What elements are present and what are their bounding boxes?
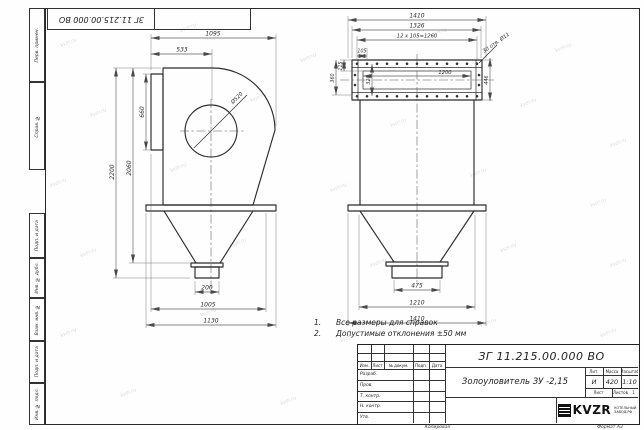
bolt-hole-dot [476,62,479,65]
bolt-hole-dot [426,62,429,65]
tb-lit-value: И [585,375,603,388]
bolt-hole-dot [356,95,359,98]
kvzr-logo-text: KVZR [573,403,612,417]
dim-320: 320 [366,75,372,84]
bolt-hole-dot [456,95,459,98]
bolt-hole-dot [456,62,459,65]
tb-col-data: Дата [429,361,445,369]
bolt-hole-dot [436,95,439,98]
tb-mass-value: 420 [603,375,621,388]
dim-475: 475 [411,283,423,290]
bolt-hole-dot [478,84,481,87]
front-outlet-box [195,267,219,278]
front-view: 1095 533 660 2200 2060 Ø520 200 [109,31,276,329]
dim-360: 360 [330,73,336,82]
tb-col-podp: Подп. [413,361,429,369]
bolt-hole-dot [466,62,469,65]
dim-105: 105 [357,49,366,55]
dia-leader-line [194,95,247,148]
dim-pitch: 12 х 105=1260 [397,34,438,40]
front-outlet-plate [191,263,223,267]
tb-col-list: Лист [371,361,384,369]
tb-role-utv: Утв. [358,412,413,423]
bolt-hole-dot [436,62,439,65]
bolt-hole-dot [376,95,379,98]
bolt-hole-dot [446,62,449,65]
tb-sheet-label: Лист [585,388,612,397]
bolt-hole-dot [354,74,357,77]
tb-lit-header: Лит. [585,367,603,375]
tb-role-prov: Пров. [358,380,413,391]
front-body-outline [163,68,275,205]
tb-col-dokum: № докум. [384,361,413,369]
drawing-sheet: kvzr.rukvzr.rukvzr.rukvzr.rukvzr.rukvzr.… [0,0,644,430]
tb-scale-value: 1:10 [621,375,638,388]
side-view: 1410 1326 12 х 105=1260 105 30 отв. Ø11 … [330,13,511,327]
dim-660: 660 [139,106,146,118]
bolt-hole-dot [466,95,469,98]
dim-115: 115 [338,61,344,70]
note-text: Все размеры для справок [336,318,438,327]
company-name: КОТЕЛЬНЫЙ ЗАВОД.РФ [614,406,636,414]
dim-446: 446 [484,75,490,84]
bolt-hole-dot [354,84,357,87]
dim-2060: 2060 [126,160,133,175]
note-number: 1. [314,318,336,327]
front-hopper-cone [164,211,253,263]
bolt-hole-dot [396,95,399,98]
dim-200: 200 [201,285,213,292]
bolt-hole-dot [406,95,409,98]
note-text: Допустимые отклонения ±50 мм [336,329,466,338]
tb-company-cell: KVZR КОТЕЛЬНЫЙ ЗАВОД.РФ [556,397,638,423]
bolt-hole-dot [366,95,369,98]
dim-1130: 1130 [203,318,218,325]
tb-doc-number: ЗГ 11.215.00.000 ВО [445,345,638,367]
dim-1005: 1005 [200,302,215,309]
dim-1095: 1095 [205,31,220,38]
bolt-hole-dot [366,62,369,65]
dim-1326: 1326 [409,23,424,30]
tb-sheets-value: 1 [629,388,638,397]
bolt-hole-dot [376,62,379,65]
tb-sheets-label: Листов [612,388,629,397]
dim-1210: 1210 [409,300,424,307]
front-inlet-side-flange [151,74,163,150]
bolt-hole-dot [356,62,359,65]
tb-role-nkontr: Н. контр. [358,401,413,412]
title-block: Изм. Лист № докум. Подп. Дата Разраб. Пр… [357,344,640,425]
tb-scale-header: Масштаб [621,367,638,375]
tb-col-izm: Изм. [358,361,371,369]
dia-520: Ø520 [229,90,245,106]
tb-role-tkontr: Т. контр. [358,391,413,401]
note-number: 2. [314,329,336,338]
bolt-hole-dot [476,95,479,98]
tb-mass-header: Масса [603,367,621,375]
bolt-hole-dot [386,95,389,98]
bolt-hole-dot [478,74,481,77]
dim-1200: 1200 [438,70,452,76]
dim-2200: 2200 [109,164,116,179]
tb-role-razrab: Разраб. [358,369,413,380]
kvzr-logo-icon [558,404,571,417]
bolt-hole-dot [406,62,409,65]
bolt-hole-dot [396,62,399,65]
dim-1410-top: 1410 [409,13,424,20]
holes-note: 30 отв. Ø11 [481,31,511,55]
notes-list: 1. Все размеры для справок 2. Допустимые… [314,318,539,340]
copied-label: Копировал [400,425,475,430]
bolt-hole-dot [446,95,449,98]
bolt-hole-dot [426,95,429,98]
dim-533: 533 [176,47,188,54]
note-item: 1. Все размеры для справок [314,318,539,327]
tb-part-name: Золоуловитель ЗУ -2,15 [445,367,585,397]
note-item: 2. Допустимые отклонения ±50 мм [314,329,539,338]
format-label: Формат А3 [583,425,637,430]
bolt-hole-dot [386,62,389,65]
